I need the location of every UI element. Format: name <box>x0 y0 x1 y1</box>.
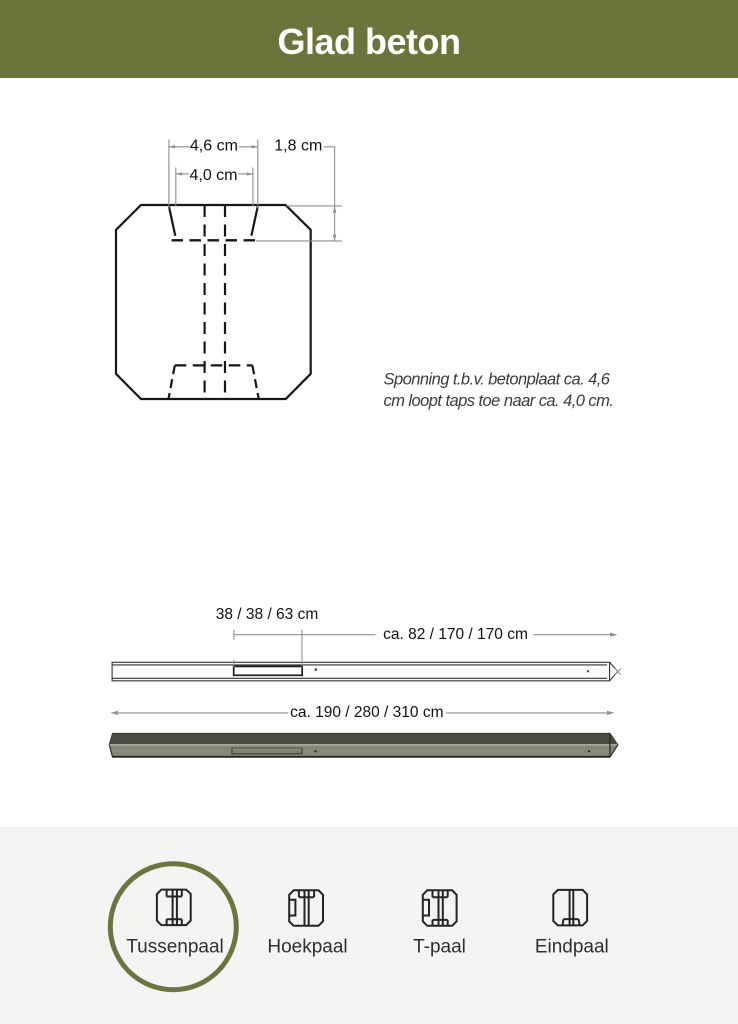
svg-text:1,8 cm: 1,8 cm <box>274 138 322 155</box>
svg-text:4,6 cm: 4,6 cm <box>190 138 238 155</box>
svg-text:4,0 cm: 4,0 cm <box>189 167 237 184</box>
svg-text:ca. 82 / 170 / 170 cm: ca. 82 / 170 / 170 cm <box>383 626 528 643</box>
svg-text:Tussenpaal: Tussenpaal <box>126 937 224 958</box>
svg-text:38 / 38 / 63 cm: 38 / 38 / 63 cm <box>216 606 319 623</box>
svg-text:Eindpaal: Eindpaal <box>535 937 609 958</box>
svg-text:Hoekpaal: Hoekpaal <box>267 937 347 958</box>
svg-text:cm loopt taps toe naar ca. 4,0: cm loopt taps toe naar ca. 4,0 cm. <box>384 392 614 410</box>
svg-text:T-paal: T-paal <box>413 937 466 958</box>
svg-text:Sponning t.b.v. betonplaat ca.: Sponning t.b.v. betonplaat ca. 4,6 <box>384 371 611 389</box>
svg-text:ca. 190 / 280 / 310 cm: ca. 190 / 280 / 310 cm <box>290 704 443 721</box>
